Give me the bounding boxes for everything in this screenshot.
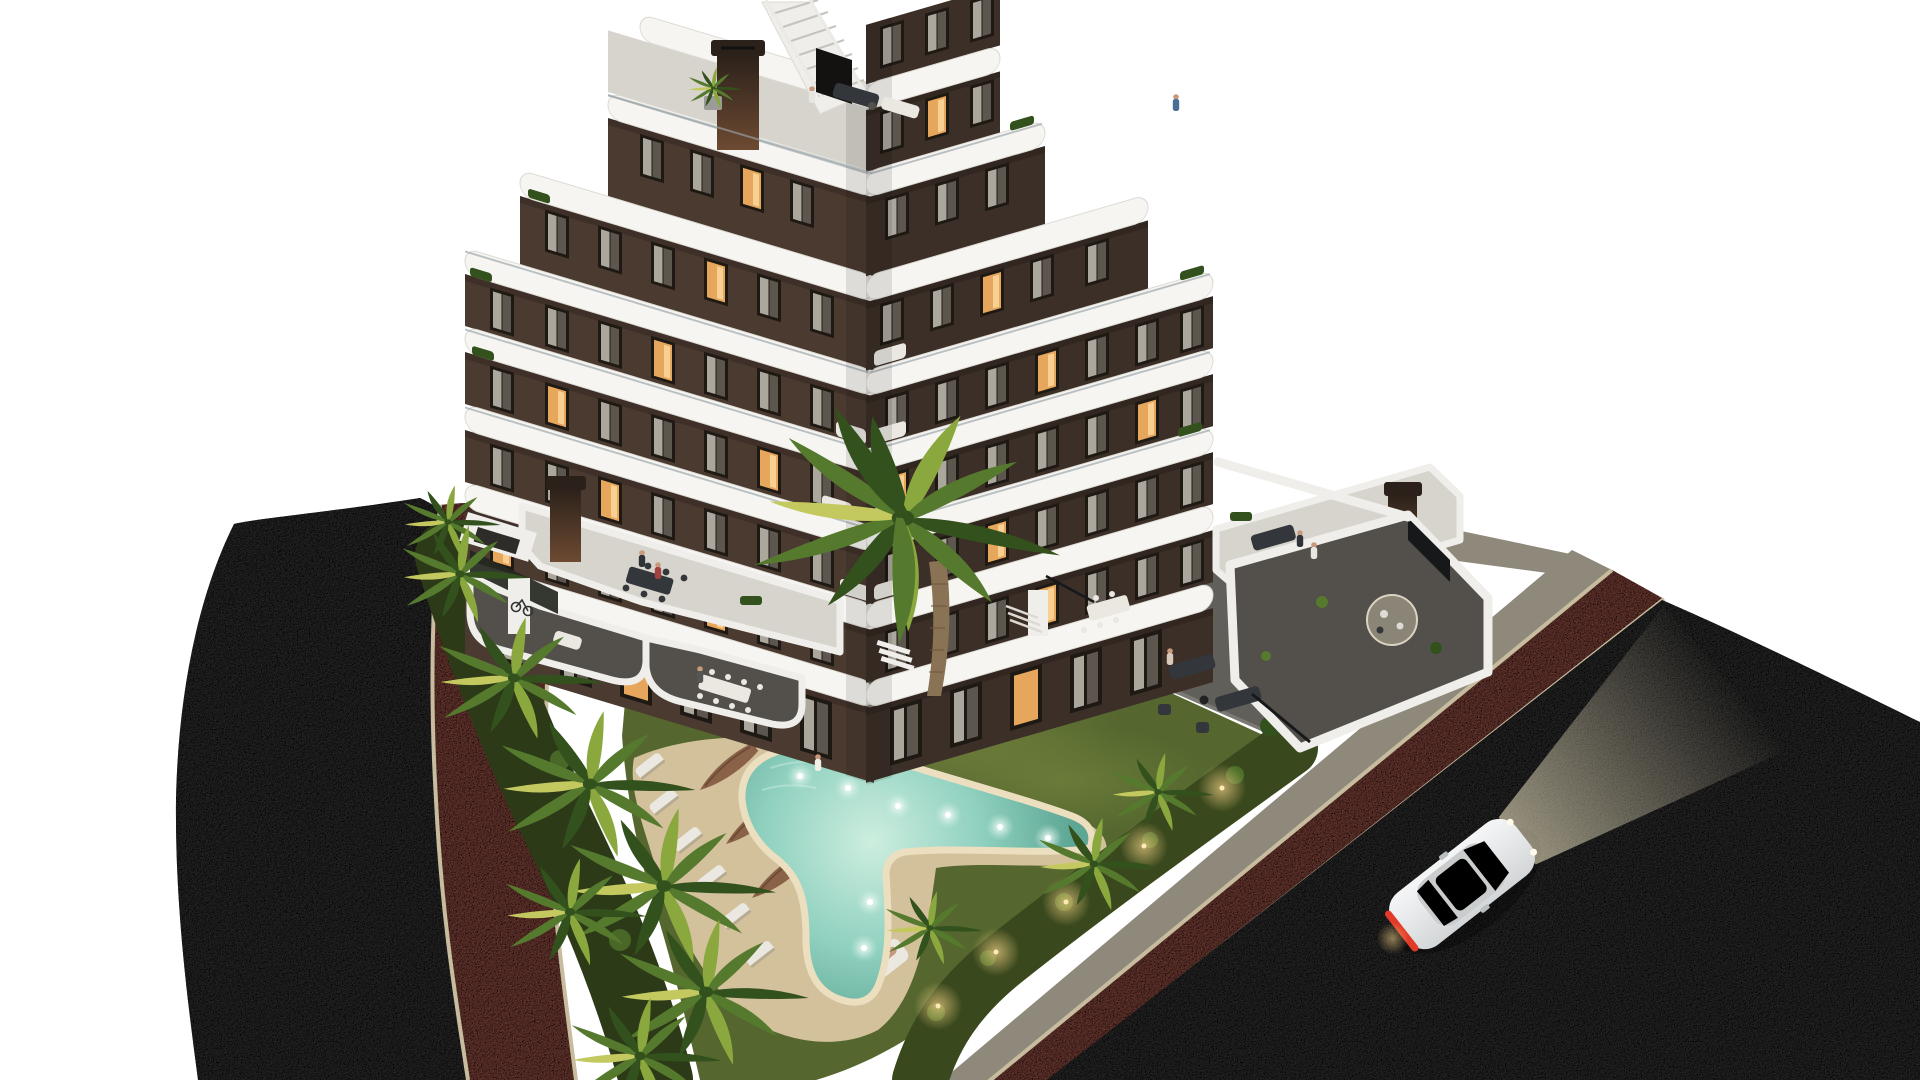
woman-at-pool <box>815 754 821 771</box>
render-canvas: Aerial dusk rendering of a modern L-shap… <box>0 0 1920 1080</box>
terrace-gravel-circle <box>1367 595 1417 645</box>
podium-chimney-left <box>546 476 586 562</box>
architectural-rendering: Aerial dusk rendering of a modern L-shap… <box>0 0 1920 1080</box>
